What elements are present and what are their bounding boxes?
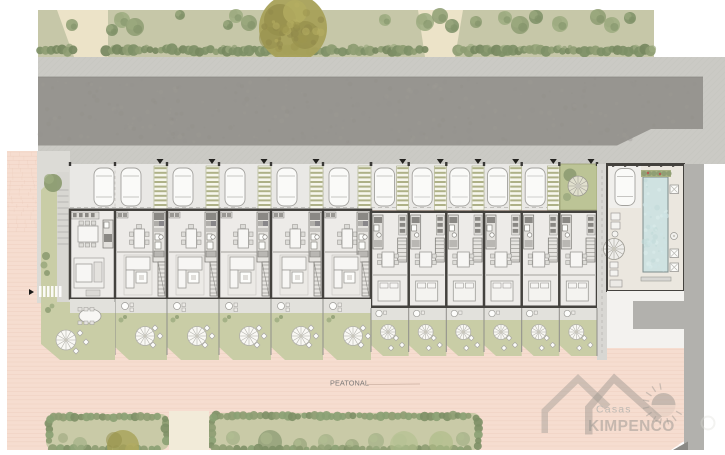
svg-text:KIMPENCO: KIMPENCO xyxy=(588,418,675,435)
svg-text:Casas: Casas xyxy=(596,404,632,416)
svg-text:PEATONAL: PEATONAL xyxy=(330,379,369,388)
